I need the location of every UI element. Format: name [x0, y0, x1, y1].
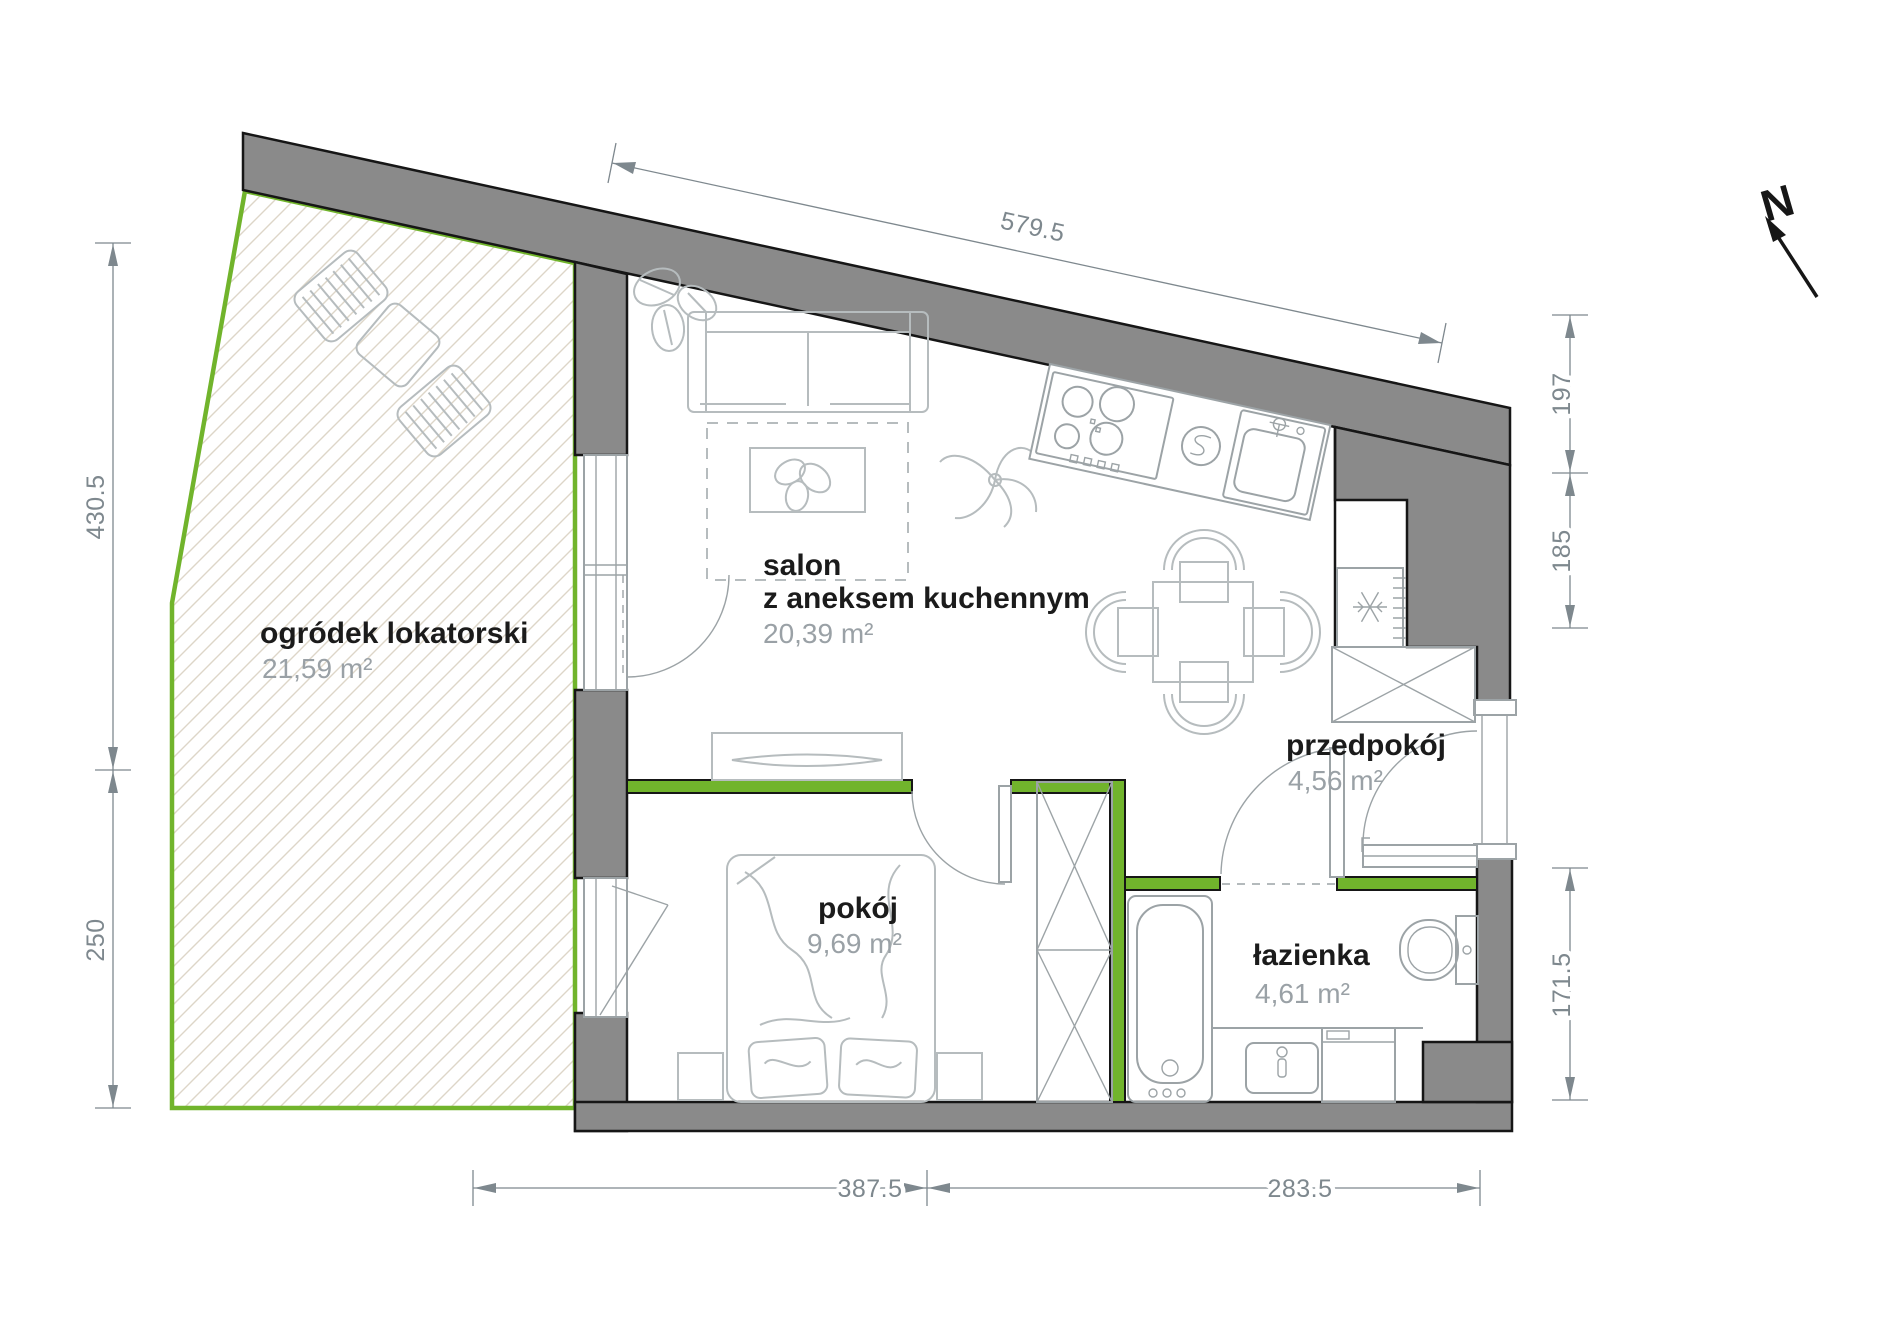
dining-chair-east [1244, 592, 1320, 672]
pillow-right [839, 1038, 918, 1098]
room-label-bath: łazienka [1253, 939, 1370, 972]
toilet [1400, 916, 1478, 984]
room-area-garden: 21,59 m² [262, 653, 373, 684]
dining-set [1086, 530, 1320, 734]
wall-bath-step [1423, 1042, 1512, 1102]
wardrobe-bedroom [1037, 782, 1112, 1102]
wall-west-pier-2 [575, 690, 627, 878]
room-area-hall: 4,56 m² [1288, 765, 1383, 796]
dimension-bottom-right-value: 283.5 [1267, 1175, 1332, 1203]
dimension-bottom: 387.5 283.5 [473, 1170, 1480, 1206]
dining-table [1153, 582, 1253, 682]
wall-bottom [575, 1102, 1512, 1131]
bedroom-door [912, 786, 1011, 884]
entrance-door [1362, 700, 1516, 867]
dimension-right-lower-value: 171.5 [1548, 952, 1576, 1017]
dimension-right-upper-value: 197 [1548, 372, 1576, 415]
dimension-right: 197 185 171.5 [1548, 315, 1588, 1100]
room-area-living: 20,39 m² [763, 618, 874, 649]
partition-living-bedroom [627, 780, 912, 793]
snowflake-icon [1353, 592, 1387, 621]
wall-west-pier-1 [575, 262, 627, 455]
pillow-left [748, 1037, 828, 1098]
room-area-bedroom: 9,69 m² [807, 928, 902, 959]
coffee-table [750, 448, 865, 513]
floor-plan-page: ogródek lokatorski 21,59 m² salon z anek… [0, 0, 1900, 1343]
washing-machine [1322, 1028, 1395, 1102]
wall-top-right-corner [1335, 427, 1510, 712]
wardrobe-hall [1332, 647, 1475, 722]
dimension-left-upper-value: 430.5 [82, 474, 110, 539]
bathtub [1128, 896, 1212, 1102]
room-area-bath: 4,61 m² [1255, 978, 1350, 1009]
room-label-garden: ogródek lokatorski [260, 617, 528, 650]
plant-palm [940, 448, 1036, 527]
bedroom-window [584, 878, 668, 1017]
room-label-living-line2: z aneksem kuchennym [763, 582, 1090, 615]
fridge [1337, 568, 1406, 647]
partition-bath-north-right [1337, 877, 1477, 890]
bedroom-door-leaf [999, 786, 1011, 882]
dining-chair-west [1086, 592, 1158, 672]
dimension-top-value: 579.5 [998, 207, 1068, 248]
partition-bath-north-left [1125, 877, 1220, 890]
dimension-left: 430.5 250 [82, 243, 131, 1108]
room-label-bedroom: pokój [818, 892, 898, 925]
nightstand-right [937, 1053, 982, 1100]
balcony-door-swing-arc [627, 575, 729, 677]
room-label-hall: przedpokój [1286, 729, 1446, 762]
dimension-right-middle-value: 185 [1548, 529, 1576, 572]
floor-plan-drawing: ogródek lokatorski 21,59 m² salon z anek… [0, 0, 1900, 1343]
room-label-living-line1: salon [763, 549, 841, 582]
vent-grille [1393, 578, 1406, 638]
north-label: N [1756, 176, 1800, 232]
tv-sideboard [712, 733, 902, 780]
north-arrow: N [1756, 176, 1817, 297]
nightstand-left [678, 1053, 723, 1100]
dimension-bottom-left-value: 387.5 [837, 1175, 902, 1203]
dining-chair-north [1164, 530, 1244, 602]
washbasin [1246, 1043, 1318, 1093]
dining-chair-south [1164, 662, 1244, 734]
dimension-left-lower-value: 250 [82, 918, 110, 961]
bedroom-door-swing-arc [912, 791, 1005, 884]
